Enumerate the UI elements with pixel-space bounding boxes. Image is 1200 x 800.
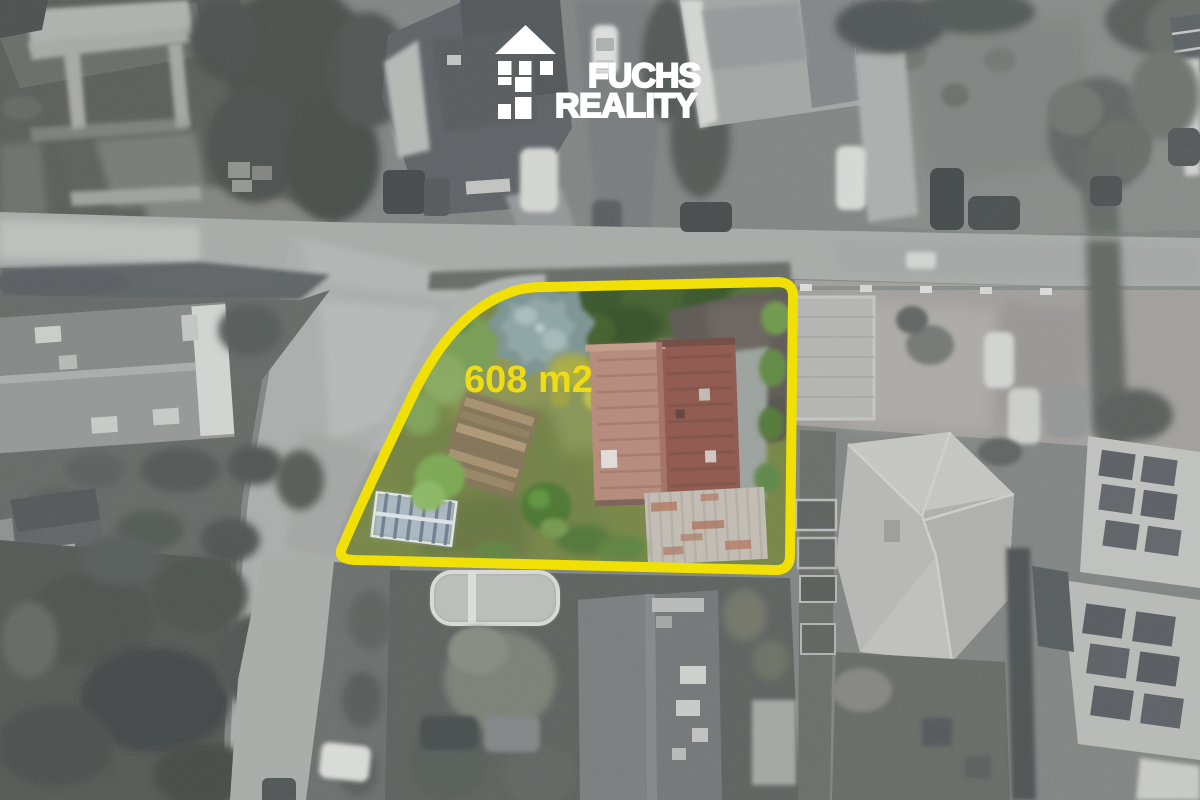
- svg-text:REALITY: REALITY: [555, 87, 698, 125]
- svg-text:608 m2: 608 m2: [464, 359, 593, 401]
